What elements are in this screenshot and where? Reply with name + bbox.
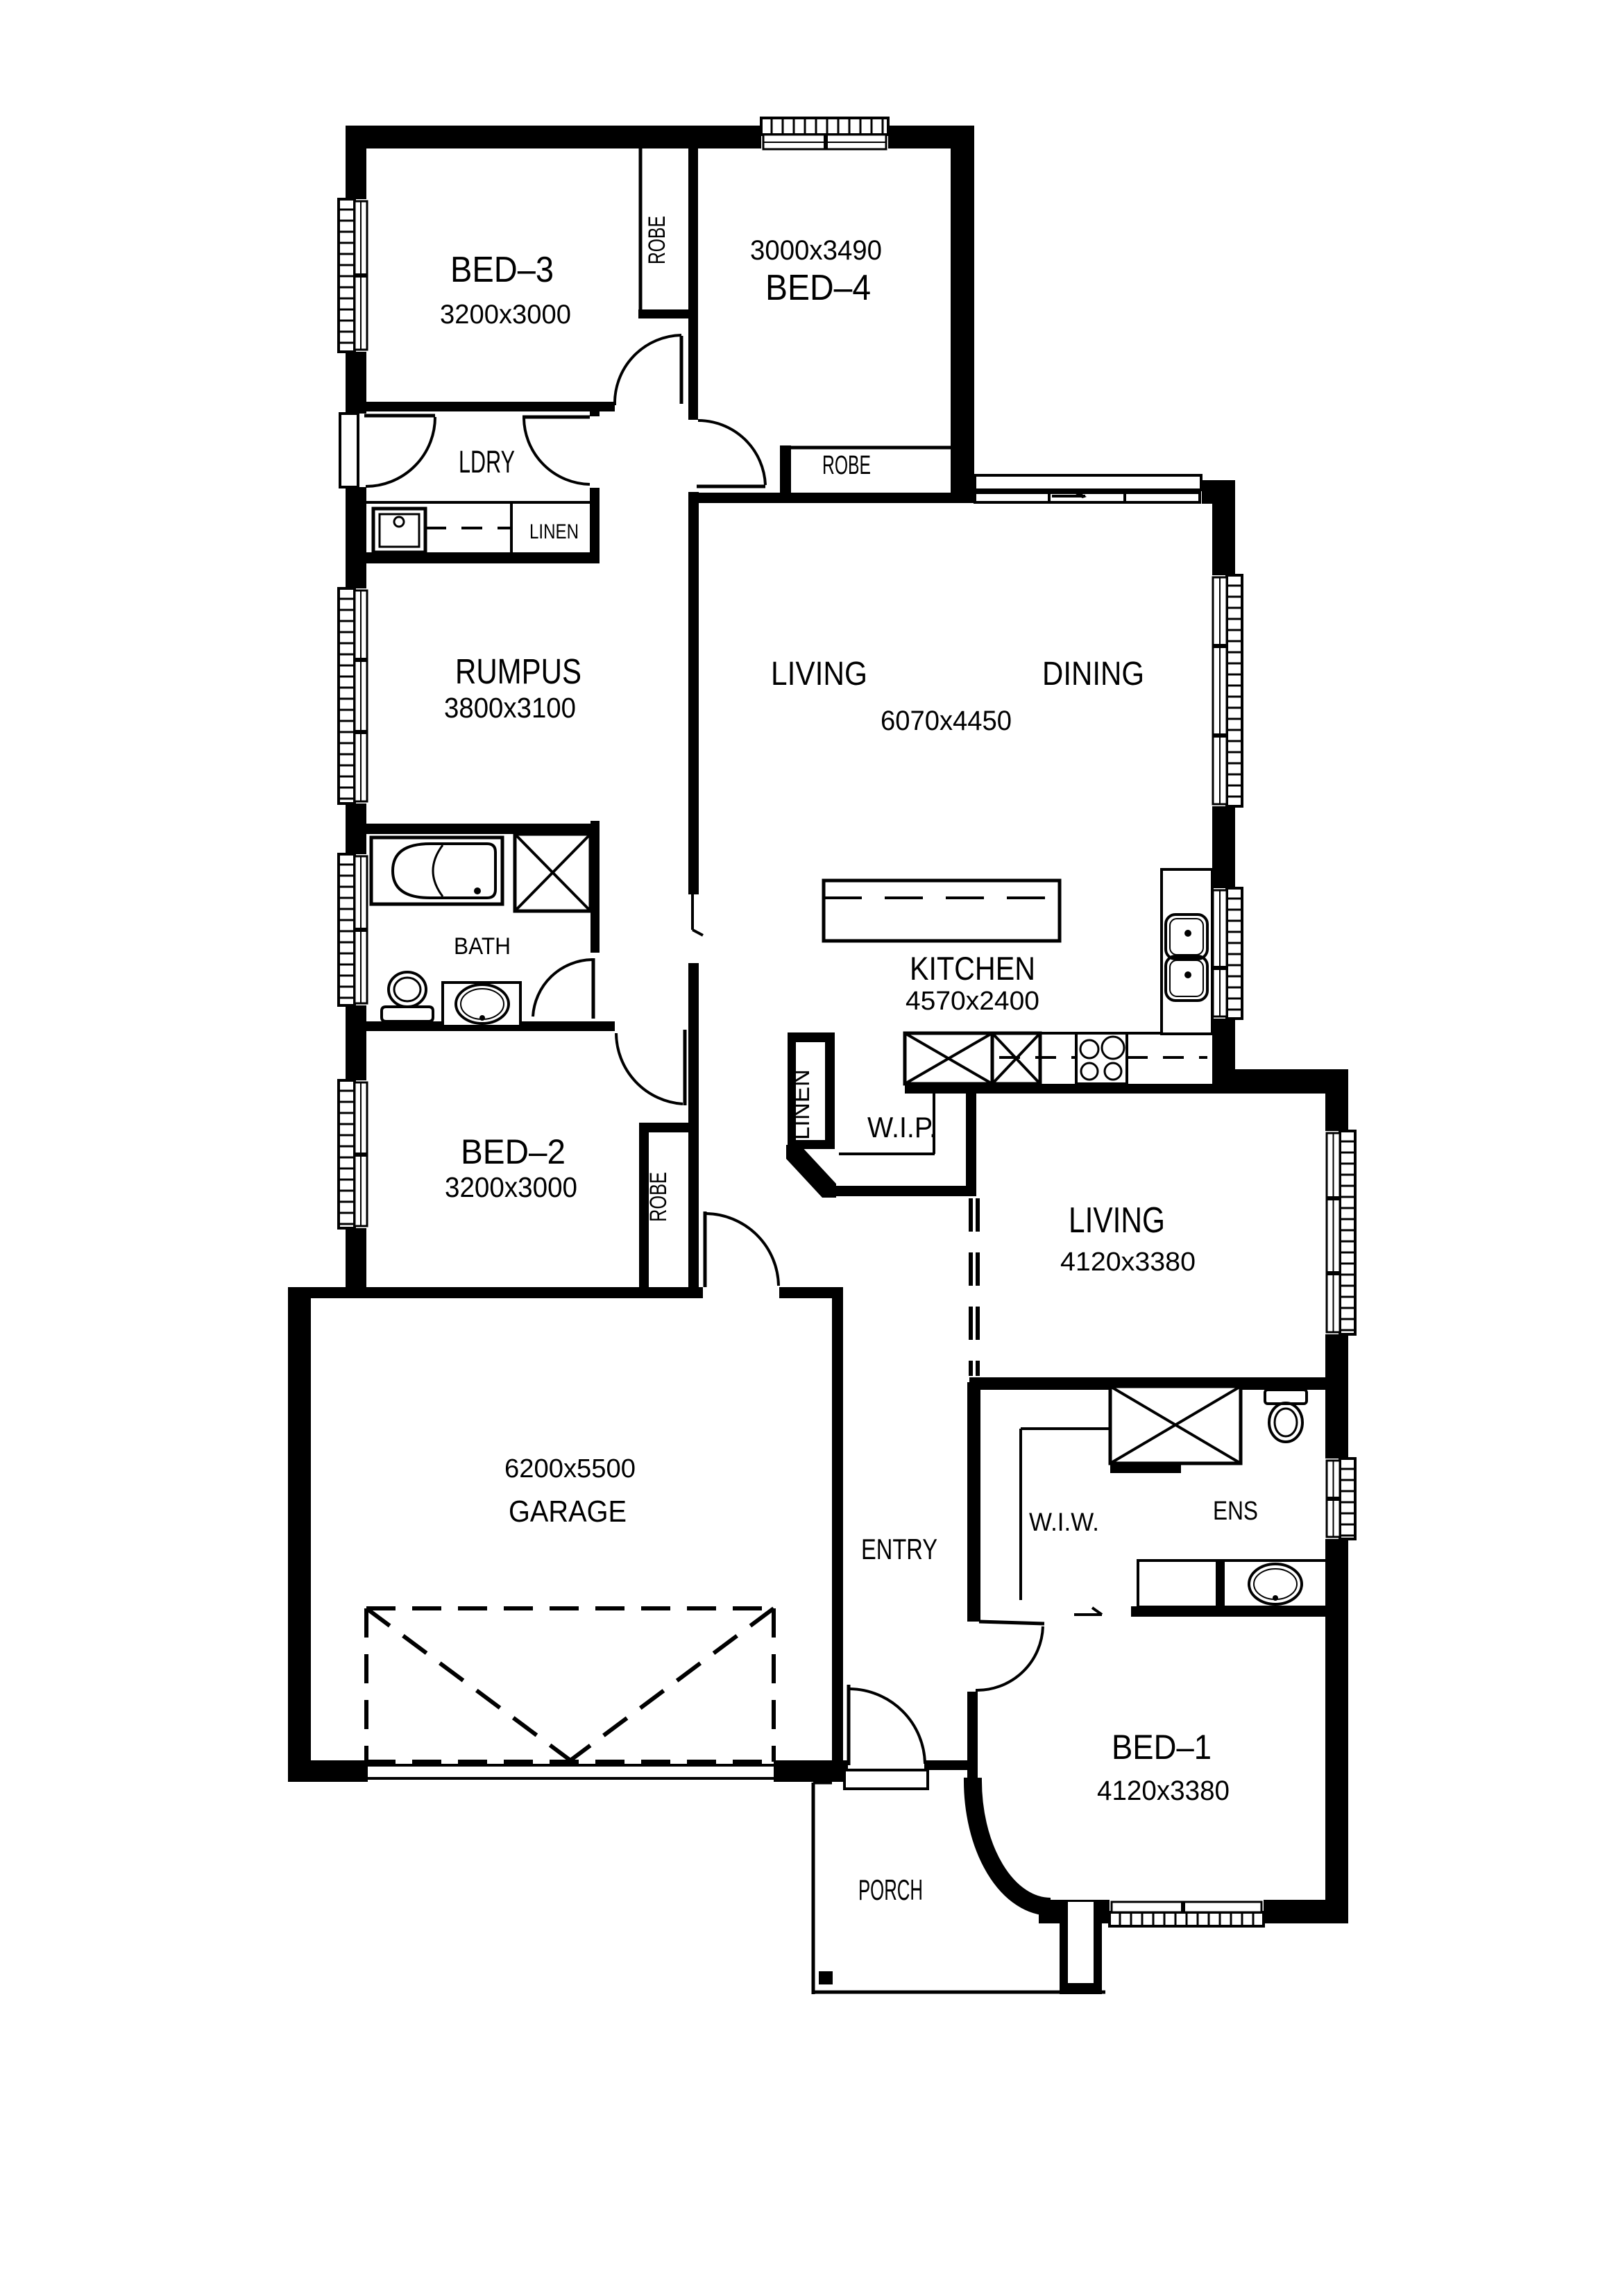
svg-text:BED–2: BED–2	[461, 1132, 566, 1171]
svg-text:W.I.W.: W.I.W.	[1029, 1508, 1099, 1536]
svg-text:PORCH: PORCH	[858, 1873, 923, 1906]
svg-text:RUMPUS: RUMPUS	[455, 652, 581, 691]
svg-text:6200x5500: 6200x5500	[504, 1454, 636, 1483]
svg-text:BED–4: BED–4	[765, 268, 871, 308]
svg-text:LINEN: LINEN	[786, 1069, 815, 1140]
svg-text:ROBE: ROBE	[644, 216, 670, 264]
svg-text:ROBE: ROBE	[645, 1172, 672, 1222]
svg-text:LIVING: LIVING	[1069, 1200, 1165, 1241]
svg-text:ROBE: ROBE	[822, 451, 871, 480]
svg-text:LDRY: LDRY	[459, 444, 515, 479]
svg-text:DINING: DINING	[1042, 656, 1144, 692]
svg-text:ENTRY: ENTRY	[861, 1533, 937, 1565]
svg-text:4120x3380: 4120x3380	[1097, 1776, 1230, 1806]
svg-text:BATH: BATH	[454, 933, 511, 960]
svg-text:4570x2400: 4570x2400	[906, 987, 1039, 1016]
svg-text:ENS: ENS	[1213, 1497, 1258, 1526]
svg-text:3200x3000: 3200x3000	[445, 1171, 577, 1203]
svg-text:3200x3000: 3200x3000	[440, 300, 571, 330]
svg-text:BED–1: BED–1	[1112, 1728, 1212, 1767]
svg-text:3000x3490: 3000x3490	[750, 235, 882, 266]
svg-text:LINEN: LINEN	[529, 520, 579, 543]
svg-text:KITCHEN: KITCHEN	[910, 950, 1035, 987]
svg-text:GARAGE: GARAGE	[509, 1495, 627, 1529]
svg-text:6070x4450: 6070x4450	[881, 706, 1012, 736]
svg-text:4120x3380: 4120x3380	[1060, 1248, 1196, 1277]
svg-text:W.I.P.: W.I.P.	[867, 1111, 937, 1143]
svg-text:BED–3: BED–3	[450, 250, 554, 290]
svg-text:LIVING: LIVING	[771, 656, 867, 692]
svg-text:3800x3100: 3800x3100	[444, 692, 576, 724]
